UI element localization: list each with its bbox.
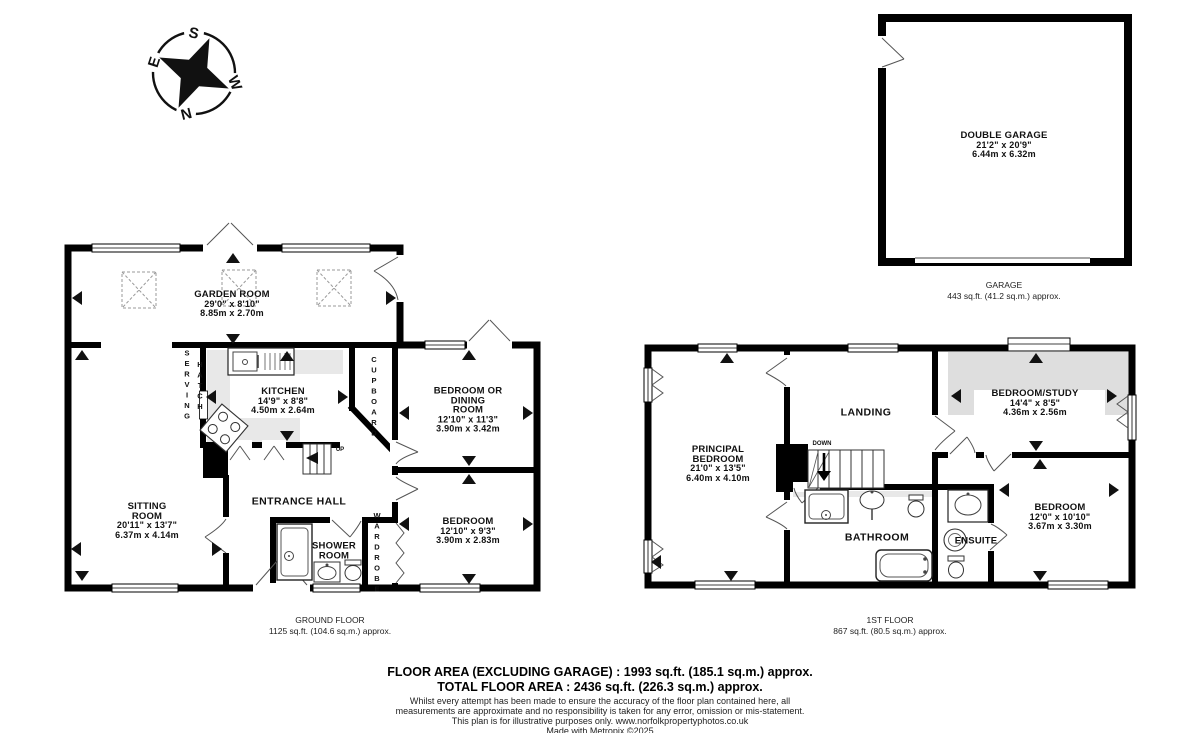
- footer-credit: Made with Metropix ©2025: [546, 726, 653, 733]
- room-label-bedroom-dining: BEDROOM OR DINING ROOM 12'10" x 11'3" 3.…: [434, 386, 503, 434]
- footer-total-area: TOTAL FLOOR AREA : 2436 sq.ft. (226.3 sq…: [437, 680, 763, 694]
- room-label-bedroom-ff: BEDROOM 12'0" x 10'10" 3.67m x 3.30m: [1028, 503, 1092, 532]
- stairs-up-icon: [303, 444, 331, 474]
- room-label-bathroom: BATHROOM: [845, 533, 909, 543]
- first-floor-caption: 1ST FLOOR 867 sq.ft. (80.5 sq.m.) approx…: [833, 615, 946, 636]
- sink-icon: [314, 562, 340, 582]
- shower-icon: [805, 490, 848, 523]
- label-cupboard: CUPBOARD: [370, 355, 379, 439]
- floorplan-graphic: S N E W: [0, 0, 1200, 733]
- sink-icon: [860, 491, 884, 521]
- room-label-garden-room: GARDEN ROOM 29'0" x 8'10" 8.85m x 2.70m: [194, 290, 270, 319]
- gf-french-door-opening: [467, 341, 512, 349]
- room-label-double-garage: DOUBLE GARAGE 21'2" x 20'9" 6.44m x 6.32…: [960, 131, 1047, 160]
- room-label-sitting-room: SITTING ROOM 20'11" x 13'7" 6.37m x 4.14…: [115, 502, 179, 540]
- footer-disclaimer-line1: Whilst every attempt has been made to en…: [410, 696, 790, 706]
- room-label-entrance-hall: ENTRANCE HALL: [252, 497, 346, 507]
- toilet-icon: [908, 495, 924, 517]
- label-serving-hatch-word1: SERVING: [183, 348, 192, 422]
- ground-floor-caption: GROUND FLOOR 1125 sq.ft. (104.6 sq.m.) a…: [269, 615, 391, 636]
- kitchen-sink-icon: [228, 348, 294, 375]
- room-label-bedroom-gf: BEDROOM 12'10" x 9'3" 3.90m x 2.83m: [436, 517, 500, 546]
- label-wardrobe: WARDROBE: [373, 511, 382, 595]
- toilet-icon: [345, 560, 361, 581]
- footer-area-excluding-garage: FLOOR AREA (EXCLUDING GARAGE) : 1993 sq.…: [387, 665, 813, 679]
- sink-icon: [948, 490, 988, 522]
- stairs-down-icon: [808, 450, 884, 488]
- room-label-ensuite: ENSUITE: [955, 536, 998, 546]
- label-stairs-down: DOWN: [813, 441, 832, 447]
- room-label-landing: LANDING: [841, 408, 892, 418]
- room-label-shower-room: SHOWER ROOM: [312, 542, 356, 561]
- compass-icon: S N E W: [144, 22, 246, 124]
- floorplan-page: S N E W: [0, 0, 1200, 733]
- footer-disclaimer-line2: measurements are approximate and no resp…: [396, 706, 805, 716]
- label-stairs-up: UP: [336, 447, 344, 453]
- room-label-bedroom-study: BEDROOM/STUDY 14'4" x 8'5" 4.36m x 2.56m: [991, 389, 1078, 418]
- toilet-icon: [948, 556, 964, 578]
- bath-icon: [876, 550, 932, 581]
- shower-icon: [277, 524, 312, 580]
- label-serving-hatch-word2: HATCH: [196, 360, 205, 413]
- footer-disclaimer-line3: This plan is for illustrative purposes o…: [452, 716, 748, 726]
- garage-caption: GARAGE 443 sq.ft. (41.2 sq.m.) approx.: [947, 280, 1060, 301]
- room-label-kitchen: KITCHEN 14'9" x 8'8" 4.50m x 2.64m: [251, 387, 315, 416]
- room-label-principal-bedroom: PRINCIPAL BEDROOM 21'0" x 13'5" 6.40m x …: [686, 445, 750, 483]
